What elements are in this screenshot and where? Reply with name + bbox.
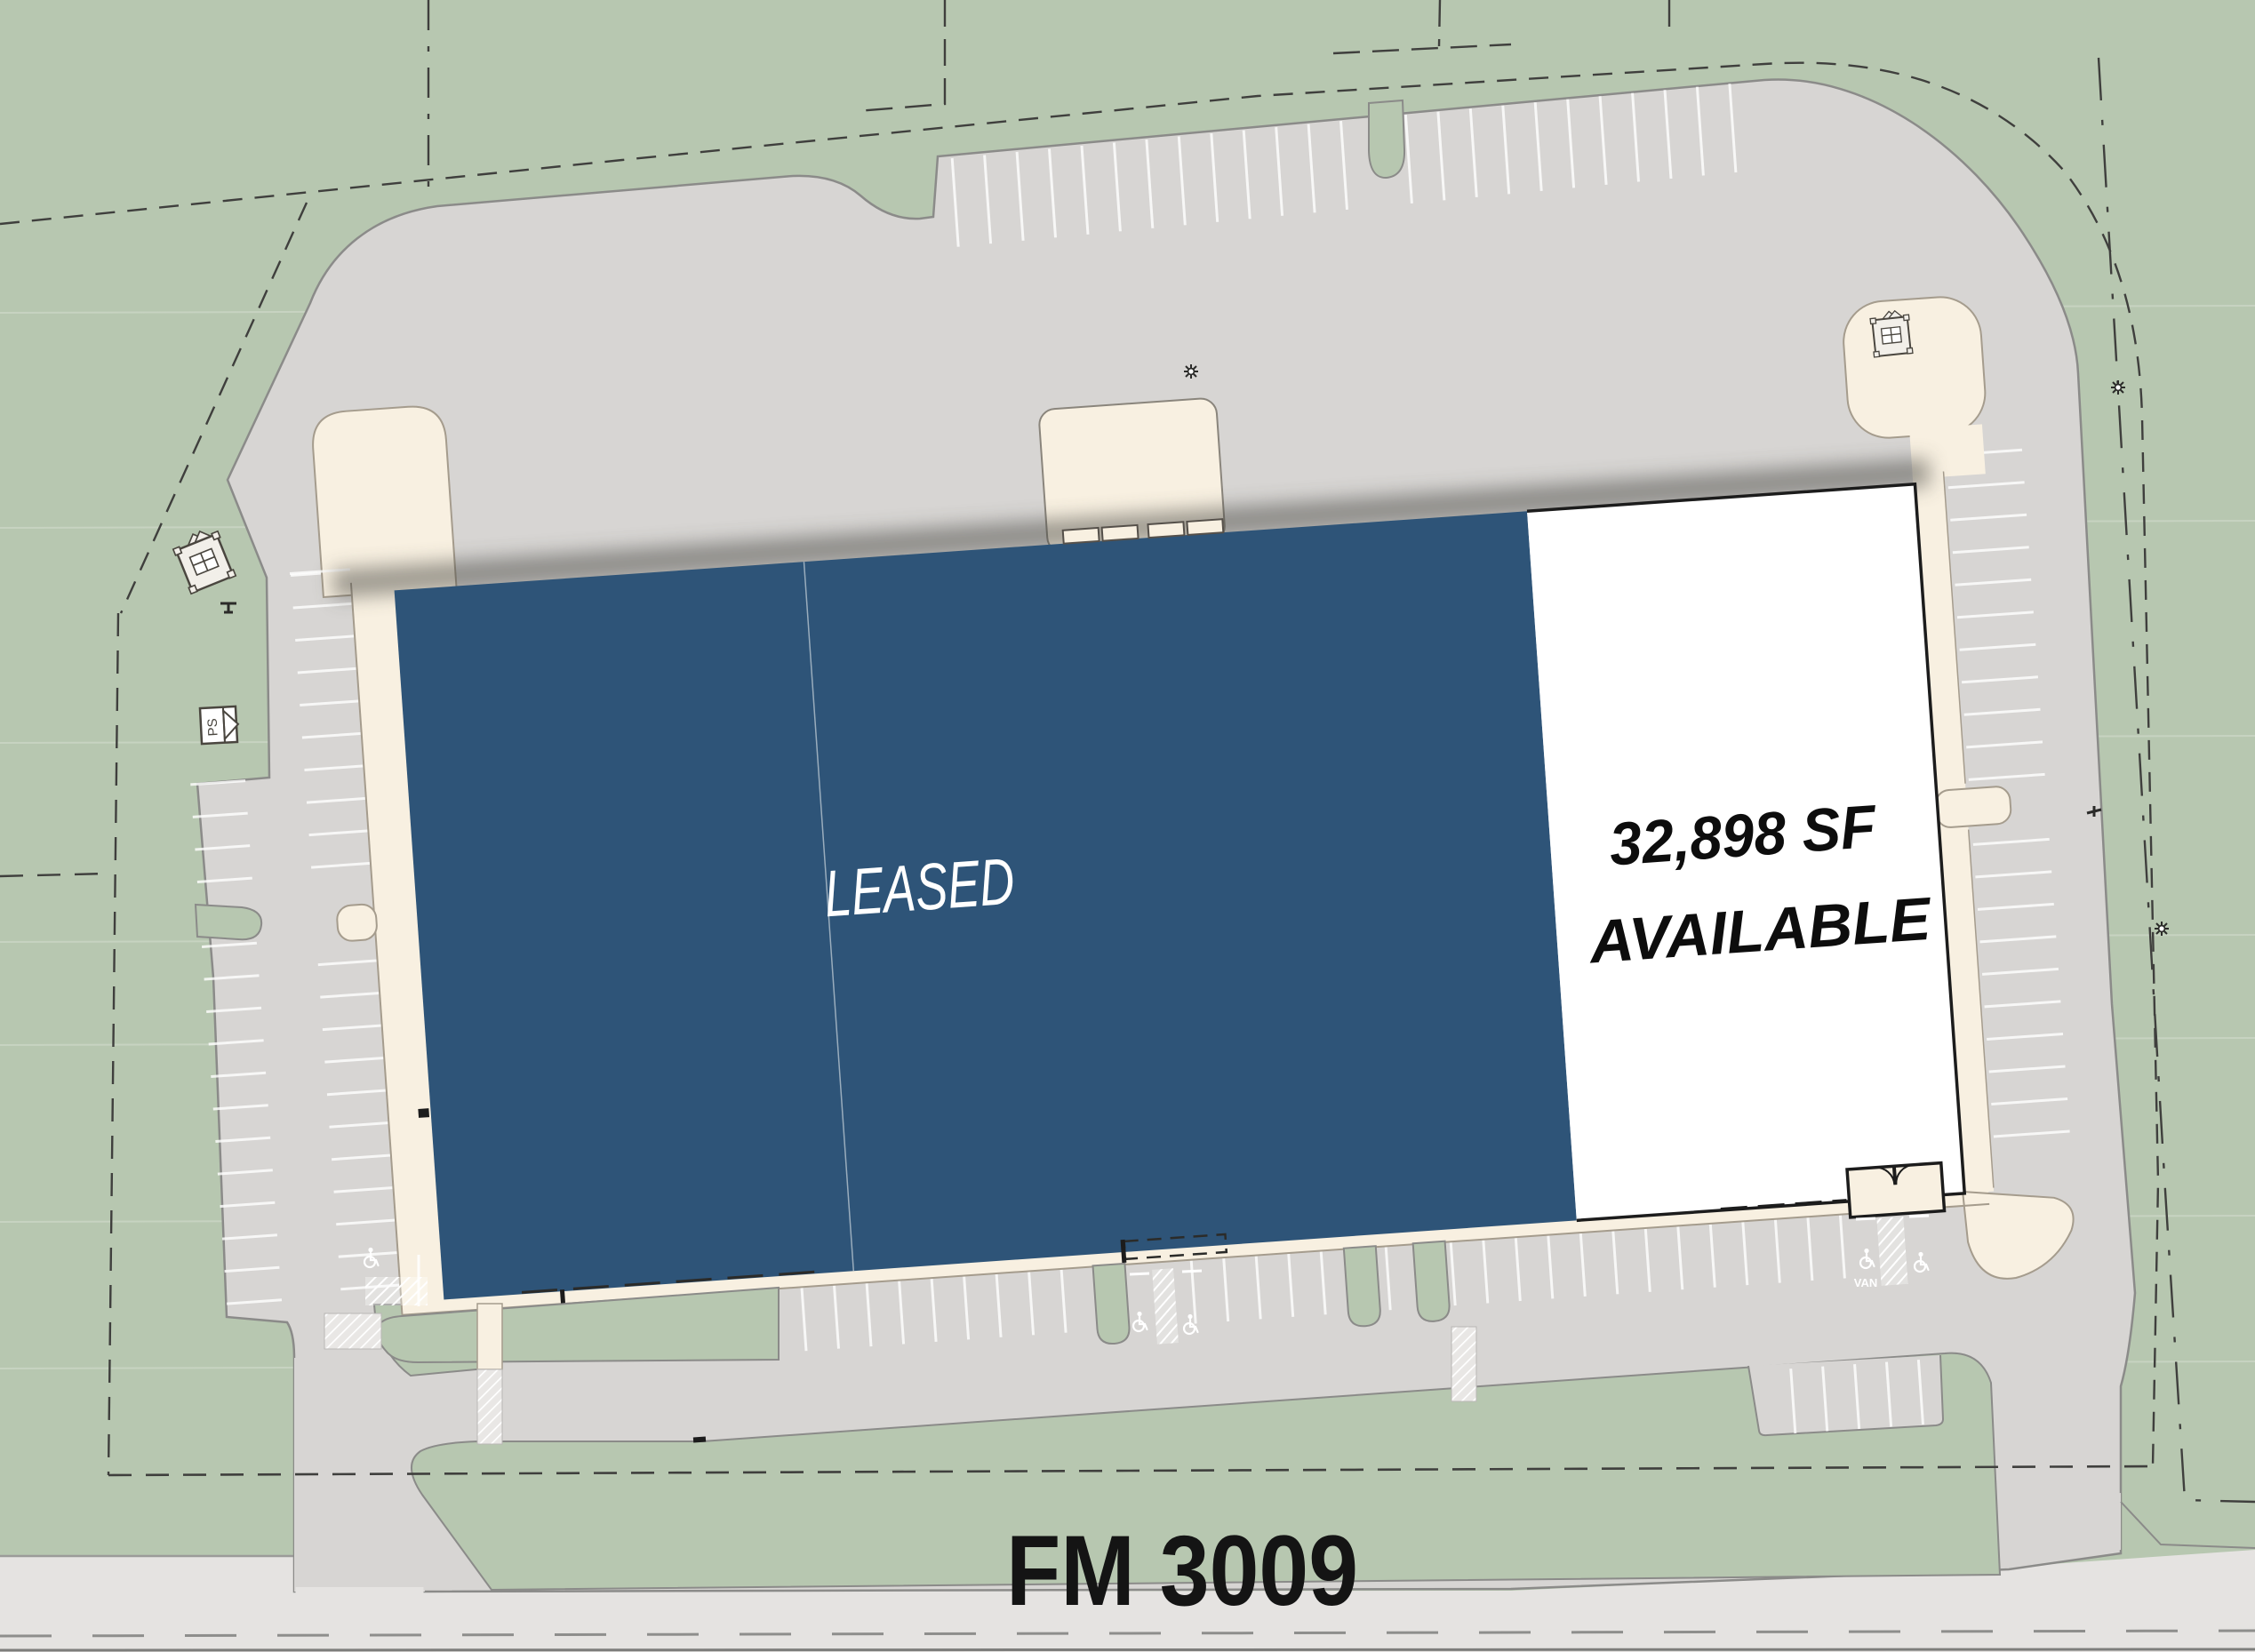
svg-text:LEASED: LEASED (822, 844, 1017, 931)
svg-text:FM 3009: FM 3009 (1006, 1515, 1358, 1626)
svg-text:VAN: VAN (1854, 1276, 1877, 1289)
svg-text:PS: PS (205, 718, 221, 737)
